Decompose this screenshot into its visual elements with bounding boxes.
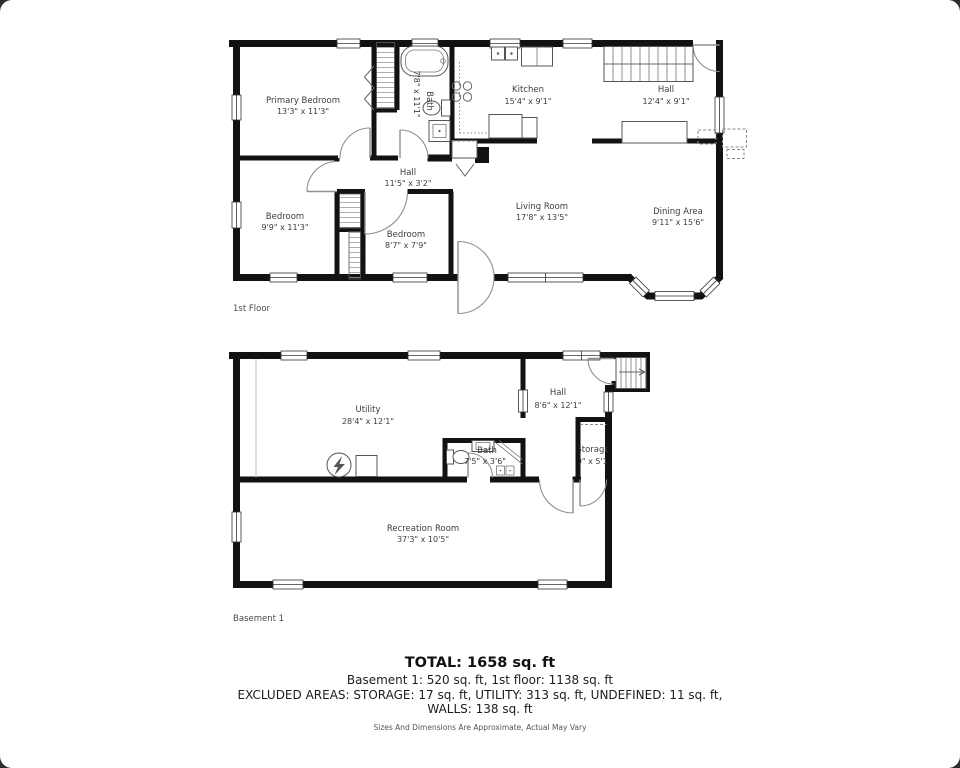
room-dims: 15'4" x 9'1": [504, 97, 551, 106]
room-dims: 8'7" x 7'9": [385, 241, 427, 250]
opening-arrow: [456, 164, 474, 176]
staircase-basement: [616, 358, 646, 389]
excluded-areas-text: EXCLUDED AREAS: STORAGE: 17 sq. ft, UTIL…: [238, 688, 723, 702]
room-label: Bedroom: [387, 230, 425, 240]
room-label: Storage: [576, 445, 609, 455]
built-in-bench: [622, 122, 687, 144]
toilet: [447, 450, 454, 464]
room-dims: 9'9" x 11'3": [261, 223, 308, 232]
basement-doors: [468, 359, 614, 514]
total-area-text: TOTAL: 1658 sq. ft: [405, 655, 556, 671]
basement-windows: [232, 351, 613, 589]
toilet: [442, 100, 451, 116]
floorplan-page: Primary Bedroom 13'3" x 11'3" Bath 7'8" …: [0, 0, 960, 768]
floor-areas-text: Basement 1: 520 sq. ft, 1st floor: 1138 …: [347, 673, 614, 687]
area-summary: TOTAL: 1658 sq. ft Basement 1: 520 sq. f…: [238, 655, 723, 732]
room-label: Bedroom: [266, 212, 304, 222]
room-label: Recreation Room: [387, 524, 459, 534]
room-label: Living Room: [516, 202, 568, 212]
disclaimer-text: Sizes And Dimensions Are Approximate, Ac…: [373, 723, 587, 732]
room-dims: 8'6" x 12'1": [534, 401, 581, 410]
room-dims: 13'3" x 11'3": [277, 107, 329, 116]
room-label: Bath: [424, 91, 434, 111]
floor-label-first: 1st Floor: [233, 304, 271, 314]
room-label: Hall: [550, 388, 566, 398]
screenshot: Primary Bedroom 13'3" x 11'3" Bath 7'8" …: [0, 0, 960, 768]
room-label: Hall: [658, 85, 674, 95]
room-label: Utility: [355, 405, 380, 415]
room-dims: 7'5" x 3'6": [464, 457, 506, 466]
first-floor-plan: Primary Bedroom 13'3" x 11'3" Bath 7'8" …: [229, 39, 747, 314]
room-dims: 7'8" x 11'1": [412, 70, 421, 117]
floor-label-basement: Basement 1: [233, 614, 284, 624]
hall-fixtures: [622, 122, 747, 159]
stove-burners: [452, 82, 471, 101]
room-label: Bath: [477, 446, 497, 456]
excluded-areas-text-2: WALLS: 138 sq. ft: [427, 702, 532, 716]
room-label: Kitchen: [512, 85, 544, 95]
basement-labels: Utility 28'4" x 12'1" Hall 8'6" x 12'1" …: [342, 388, 617, 544]
room-label: Hall: [400, 168, 416, 178]
utility-equipment: [356, 456, 377, 477]
room-dims: 12'4" x 9'1": [642, 97, 689, 106]
kitchen-island: [489, 115, 522, 139]
kitchen-fixtures: [452, 47, 553, 176]
floorplan-image: Primary Bedroom 13'3" x 11'3" Bath 7'8" …: [0, 0, 960, 768]
basement-walls: [229, 352, 650, 588]
basement-plan: Utility 28'4" x 12'1" Hall 8'6" x 12'1" …: [229, 351, 650, 624]
room-dims: 11'5" x 3'2": [384, 179, 431, 188]
room-dims: 37'3" x 10'5": [397, 535, 449, 544]
staircase-first-floor: [604, 47, 693, 82]
room-dims: 17'8" x 13'5": [516, 213, 568, 222]
room-dims: 28'4" x 12'1": [342, 417, 394, 426]
room-label: Dining Area: [653, 207, 703, 217]
room-label: Primary Bedroom: [266, 96, 340, 106]
exterior-steps: [723, 129, 747, 147]
room-dims: 9'11" x 15'6": [652, 218, 704, 227]
utility-fixtures: [327, 453, 377, 477]
